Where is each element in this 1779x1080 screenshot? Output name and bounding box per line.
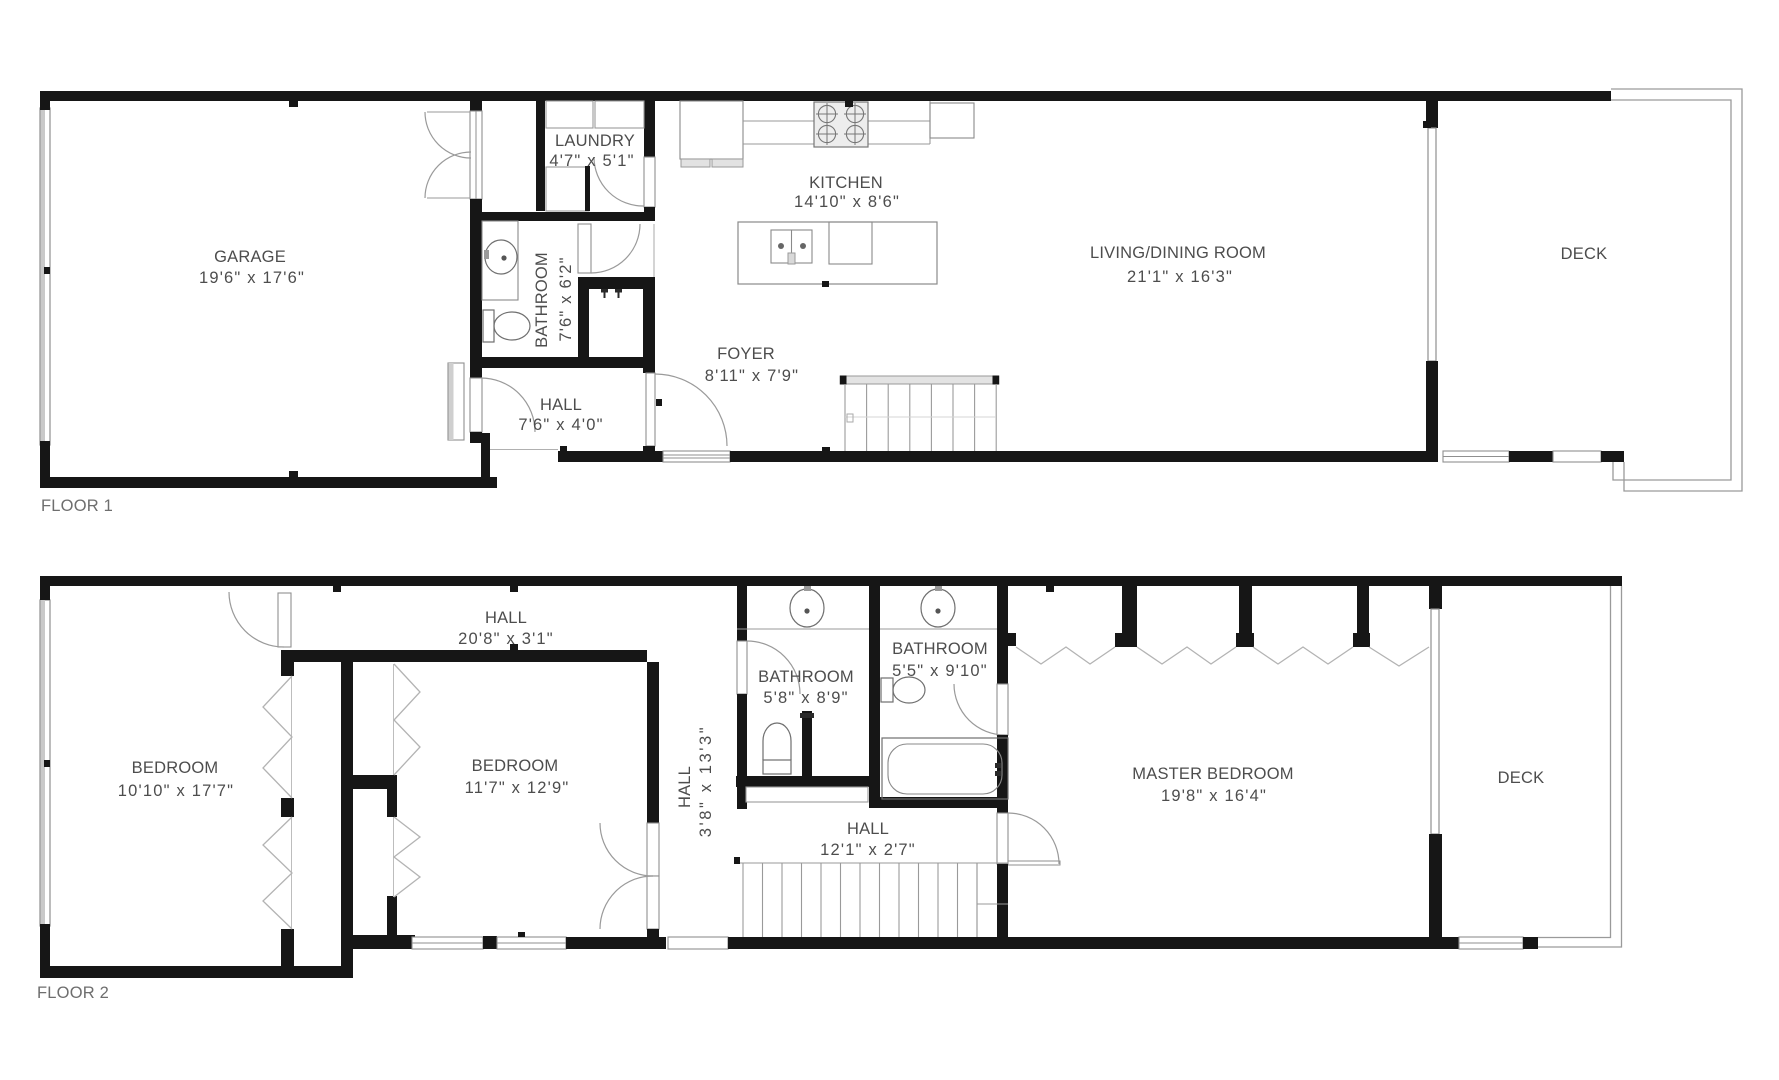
svg-text:MASTER BEDROOM: MASTER BEDROOM (1132, 765, 1293, 783)
svg-text:4'7" x 5'1": 4'7" x 5'1" (549, 152, 634, 170)
svg-text:LAUNDRY: LAUNDRY (555, 132, 635, 150)
svg-text:12'1" x 2'7": 12'1" x 2'7" (820, 841, 916, 859)
svg-text:BATHROOM: BATHROOM (892, 640, 988, 658)
svg-text:HALL: HALL (676, 766, 694, 808)
svg-text:14'10" x 8'6": 14'10" x 8'6" (794, 193, 900, 211)
svg-text:11'7" x 12'9": 11'7" x 12'9" (465, 779, 570, 797)
svg-text:19'6" x 17'6": 19'6" x 17'6" (199, 269, 305, 287)
svg-text:21'1" x 16'3": 21'1" x 16'3" (1127, 268, 1233, 286)
svg-text:KITCHEN: KITCHEN (809, 174, 883, 192)
svg-text:LIVING/DINING ROOM: LIVING/DINING ROOM (1090, 244, 1266, 262)
svg-text:HALL: HALL (485, 609, 527, 627)
svg-text:BEDROOM: BEDROOM (132, 759, 219, 777)
svg-text:BATHROOM: BATHROOM (758, 668, 854, 686)
svg-text:8'11" x 7'9": 8'11" x 7'9" (705, 367, 800, 385)
svg-text:7'6" x 6'2": 7'6" x 6'2" (557, 256, 575, 341)
svg-text:BATHROOM: BATHROOM (533, 252, 551, 348)
svg-text:BEDROOM: BEDROOM (472, 757, 559, 775)
svg-text:FLOOR 1: FLOOR 1 (41, 497, 113, 515)
svg-text:HALL: HALL (847, 820, 889, 838)
svg-text:HALL: HALL (540, 396, 582, 414)
svg-text:5'5" x 9'10": 5'5" x 9'10" (892, 662, 988, 680)
svg-text:20'8" x 3'1": 20'8" x 3'1" (458, 630, 554, 648)
svg-text:FLOOR 2: FLOOR 2 (37, 984, 109, 1002)
svg-text:DECK: DECK (1561, 245, 1608, 263)
svg-text:3'8" x 13'3": 3'8" x 13'3" (697, 725, 715, 838)
svg-text:DECK: DECK (1498, 769, 1545, 787)
svg-text:5'8" x 8'9": 5'8" x 8'9" (763, 689, 848, 707)
svg-text:19'8" x 16'4": 19'8" x 16'4" (1161, 787, 1267, 805)
svg-text:FOYER: FOYER (717, 345, 775, 363)
svg-text:7'6" x 4'0": 7'6" x 4'0" (518, 416, 603, 434)
svg-text:10'10" x 17'7": 10'10" x 17'7" (118, 782, 234, 800)
svg-text:GARAGE: GARAGE (214, 248, 286, 266)
